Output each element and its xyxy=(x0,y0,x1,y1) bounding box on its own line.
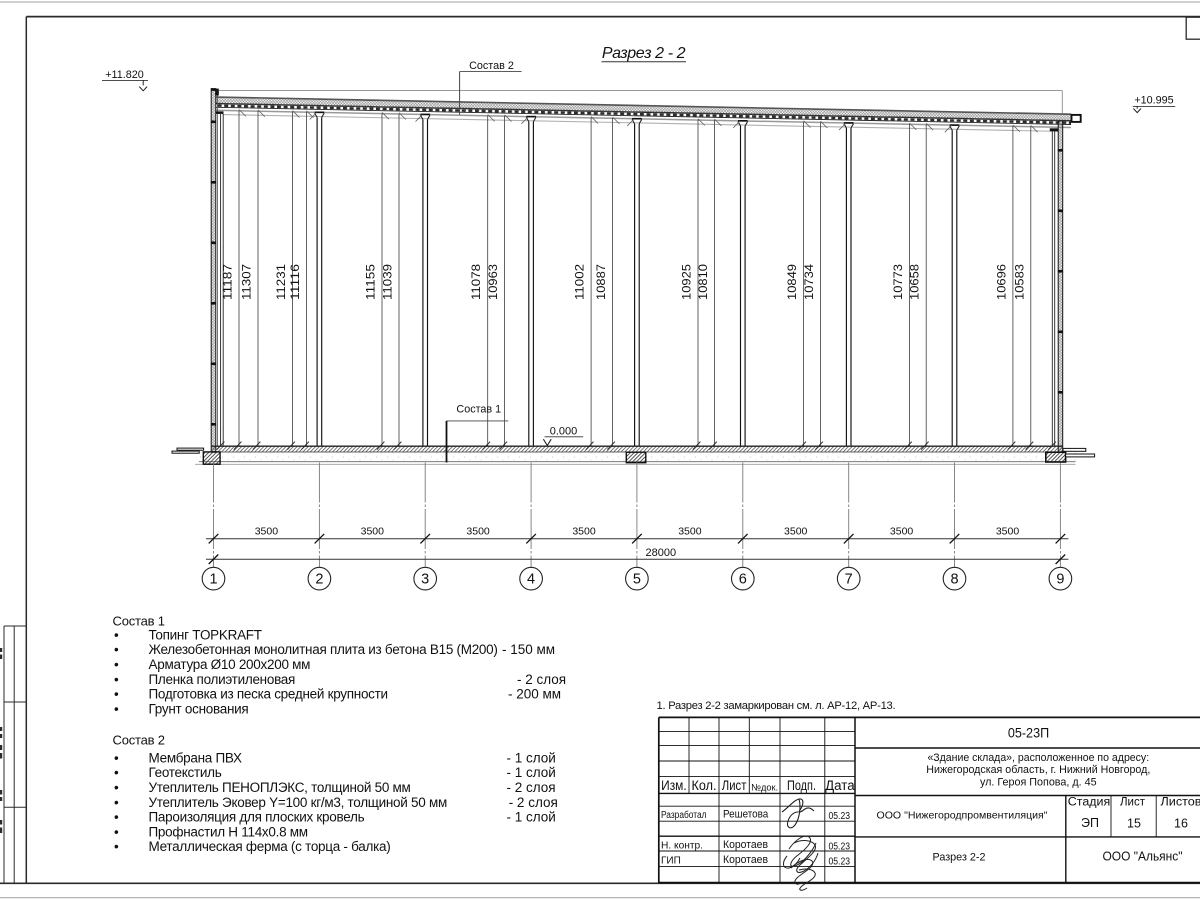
svg-text:•: • xyxy=(114,839,119,854)
svg-text:- 1 слой: - 1 слой xyxy=(507,750,556,765)
svg-text:10849: 10849 xyxy=(785,264,799,300)
svg-text:3500: 3500 xyxy=(678,526,702,538)
svg-text:Нижегородская область, г. Нижн: Нижегородская область, г. Нижний Новгоро… xyxy=(926,764,1150,776)
svg-text:Утеплитель ПЕНОПЛЭКС, толщиной: Утеплитель ПЕНОПЛЭКС, толщиной 50 мм xyxy=(149,780,411,795)
svg-text:•: • xyxy=(114,627,119,642)
svg-text:11002: 11002 xyxy=(573,264,587,300)
svg-text:3500: 3500 xyxy=(996,526,1020,538)
svg-text:Лист: Лист xyxy=(722,778,747,793)
svg-text:10963: 10963 xyxy=(486,264,500,300)
svg-text:10583: 10583 xyxy=(1012,264,1026,300)
svg-text:10925: 10925 xyxy=(680,264,694,300)
svg-text:Железобетонная монолитная плит: Железобетонная монолитная плита из бетон… xyxy=(149,642,498,657)
svg-text:2: 2 xyxy=(315,572,323,588)
svg-text:Решетова: Решетова xyxy=(723,809,769,821)
svg-text:11078: 11078 xyxy=(469,264,483,300)
svg-text:•: • xyxy=(114,657,119,672)
svg-text:10658: 10658 xyxy=(908,264,922,300)
svg-text:05.23: 05.23 xyxy=(829,811,851,822)
svg-text:10734: 10734 xyxy=(802,264,816,300)
svg-text:Состав 1: Состав 1 xyxy=(456,404,501,416)
svg-text:11155: 11155 xyxy=(364,264,378,300)
svg-text:Коротаев: Коротаев xyxy=(723,839,768,851)
svg-text:•: • xyxy=(114,810,119,825)
svg-text:Состав 2: Состав 2 xyxy=(469,60,514,72)
svg-text:11187: 11187 xyxy=(221,264,235,300)
svg-text:•: • xyxy=(114,780,119,795)
svg-text:«Здание склада», расположенное: «Здание склада», расположенное по адресу… xyxy=(927,752,1149,764)
svg-text:15: 15 xyxy=(1127,817,1141,831)
svg-text:4: 4 xyxy=(527,572,535,588)
svg-text:28000: 28000 xyxy=(646,547,677,559)
svg-text:8: 8 xyxy=(950,572,958,588)
svg-text:ООО "Альянс": ООО "Альянс" xyxy=(1103,850,1183,864)
svg-text:- 1 слой: - 1 слой xyxy=(507,810,556,825)
svg-text:10810: 10810 xyxy=(696,264,710,300)
svg-text:9: 9 xyxy=(1056,572,1064,588)
svg-text:Пароизоляция для плоских крове: Пароизоляция для плоских кровель xyxy=(149,810,365,825)
svg-text:•: • xyxy=(114,765,119,780)
svg-text:3500: 3500 xyxy=(784,526,808,538)
svg-text:7: 7 xyxy=(845,572,853,588)
svg-text:- 200 мм: - 200 мм xyxy=(508,687,561,702)
svg-text:3500: 3500 xyxy=(572,526,596,538)
svg-text:•: • xyxy=(114,687,119,702)
svg-text:ООО "Нижегородпромвентиляция": ООО "Нижегородпромвентиляция" xyxy=(877,809,1048,821)
svg-text:•: • xyxy=(114,795,119,810)
svg-text:10887: 10887 xyxy=(594,264,608,300)
svg-text:•: • xyxy=(114,750,119,765)
svg-text:Металлическая ферма (с торца -: Металлическая ферма (с торца - балка) xyxy=(149,839,391,854)
svg-text:11116: 11116 xyxy=(288,264,302,300)
svg-text:05-23П: 05-23П xyxy=(1008,725,1049,741)
svg-text:Лист: Лист xyxy=(1120,796,1146,808)
svg-text:1: 1 xyxy=(209,572,217,588)
svg-text:Н. контр.: Н. контр. xyxy=(661,841,703,852)
svg-text:Кол.: Кол. xyxy=(692,778,717,793)
svg-text:Дата: Дата xyxy=(825,778,855,793)
svg-text:ул. Героя Попова, д. 45: ул. Героя Попова, д. 45 xyxy=(980,776,1097,788)
svg-text:16: 16 xyxy=(1174,817,1188,831)
svg-text:10696: 10696 xyxy=(994,264,1008,300)
svg-text:Коротаев: Коротаев xyxy=(723,854,768,866)
svg-text:Топинг TOPKRAFT: Топинг TOPKRAFT xyxy=(149,627,262,642)
svg-text:3500: 3500 xyxy=(361,526,385,538)
svg-text:ЭП: ЭП xyxy=(1081,816,1099,830)
svg-text:+10.995: +10.995 xyxy=(1134,94,1173,106)
svg-text:+11.820: +11.820 xyxy=(105,69,144,81)
svg-text:Состав 1: Состав 1 xyxy=(113,613,165,628)
svg-text:3500: 3500 xyxy=(890,526,914,538)
svg-text:ГИП: ГИП xyxy=(661,856,681,867)
svg-text:6: 6 xyxy=(739,572,747,588)
svg-text:11307: 11307 xyxy=(240,264,254,300)
svg-text:Разрез 2 - 2: Разрез 2 - 2 xyxy=(602,45,686,62)
svg-text:№док.: №док. xyxy=(751,783,778,794)
svg-text:3500: 3500 xyxy=(466,526,490,538)
svg-text:05.23: 05.23 xyxy=(829,842,851,853)
svg-text:•: • xyxy=(114,824,119,839)
svg-text:3500: 3500 xyxy=(255,526,279,538)
svg-text:Мембрана ПВХ: Мембрана ПВХ xyxy=(149,750,243,765)
svg-text:Профнастил Н 114х0.8 мм: Профнастил Н 114х0.8 мм xyxy=(149,824,308,839)
svg-text:05.23: 05.23 xyxy=(829,857,851,868)
svg-text:•: • xyxy=(114,701,119,716)
svg-text:Стадия: Стадия xyxy=(1068,796,1111,808)
svg-text:5: 5 xyxy=(633,572,641,588)
svg-text:Арматура Ø10 200х200 мм: Арматура Ø10 200х200 мм xyxy=(149,657,311,672)
svg-text:Подготовка из песка средней кр: Подготовка из песка средней крупности xyxy=(149,687,388,702)
svg-text:- 2 слоя: - 2 слоя xyxy=(507,780,556,795)
svg-text:•: • xyxy=(114,672,119,687)
svg-text:3: 3 xyxy=(421,572,429,588)
svg-text:Разработал: Разработал xyxy=(661,809,707,821)
svg-text:Разрез 2-2: Разрез 2-2 xyxy=(933,852,986,864)
svg-text:11039: 11039 xyxy=(381,264,395,300)
svg-text:•: • xyxy=(114,642,119,657)
svg-text:- 2 слоя: - 2 слоя xyxy=(509,795,558,810)
svg-text:- 1 слой: - 1 слой xyxy=(507,765,556,780)
svg-text:- 150 мм: - 150 мм xyxy=(502,642,555,657)
svg-text:Состав 2: Состав 2 xyxy=(113,733,165,748)
svg-text:10773: 10773 xyxy=(891,264,905,300)
svg-text:Листов: Листов xyxy=(1161,796,1200,808)
svg-text:Изм.: Изм. xyxy=(661,778,687,793)
svg-text:11231: 11231 xyxy=(274,264,288,300)
svg-text:Геотекстиль: Геотекстиль xyxy=(149,765,222,780)
svg-text:0.000: 0.000 xyxy=(550,425,578,437)
svg-text:Утеплитель Эковер Y=100 кг/м3,: Утеплитель Эковер Y=100 кг/м3, толщиной … xyxy=(149,795,447,810)
svg-text:Пленка полиэтиленовая: Пленка полиэтиленовая xyxy=(149,672,296,687)
svg-text:1. Разрез 2-2 замаркирован см.: 1. Разрез 2-2 замаркирован см. л. АР-12,… xyxy=(657,700,896,712)
svg-text:Грунт основания: Грунт основания xyxy=(149,701,249,716)
svg-text:- 2 слоя: - 2 слоя xyxy=(517,672,566,687)
svg-text:Подп.: Подп. xyxy=(787,778,816,793)
